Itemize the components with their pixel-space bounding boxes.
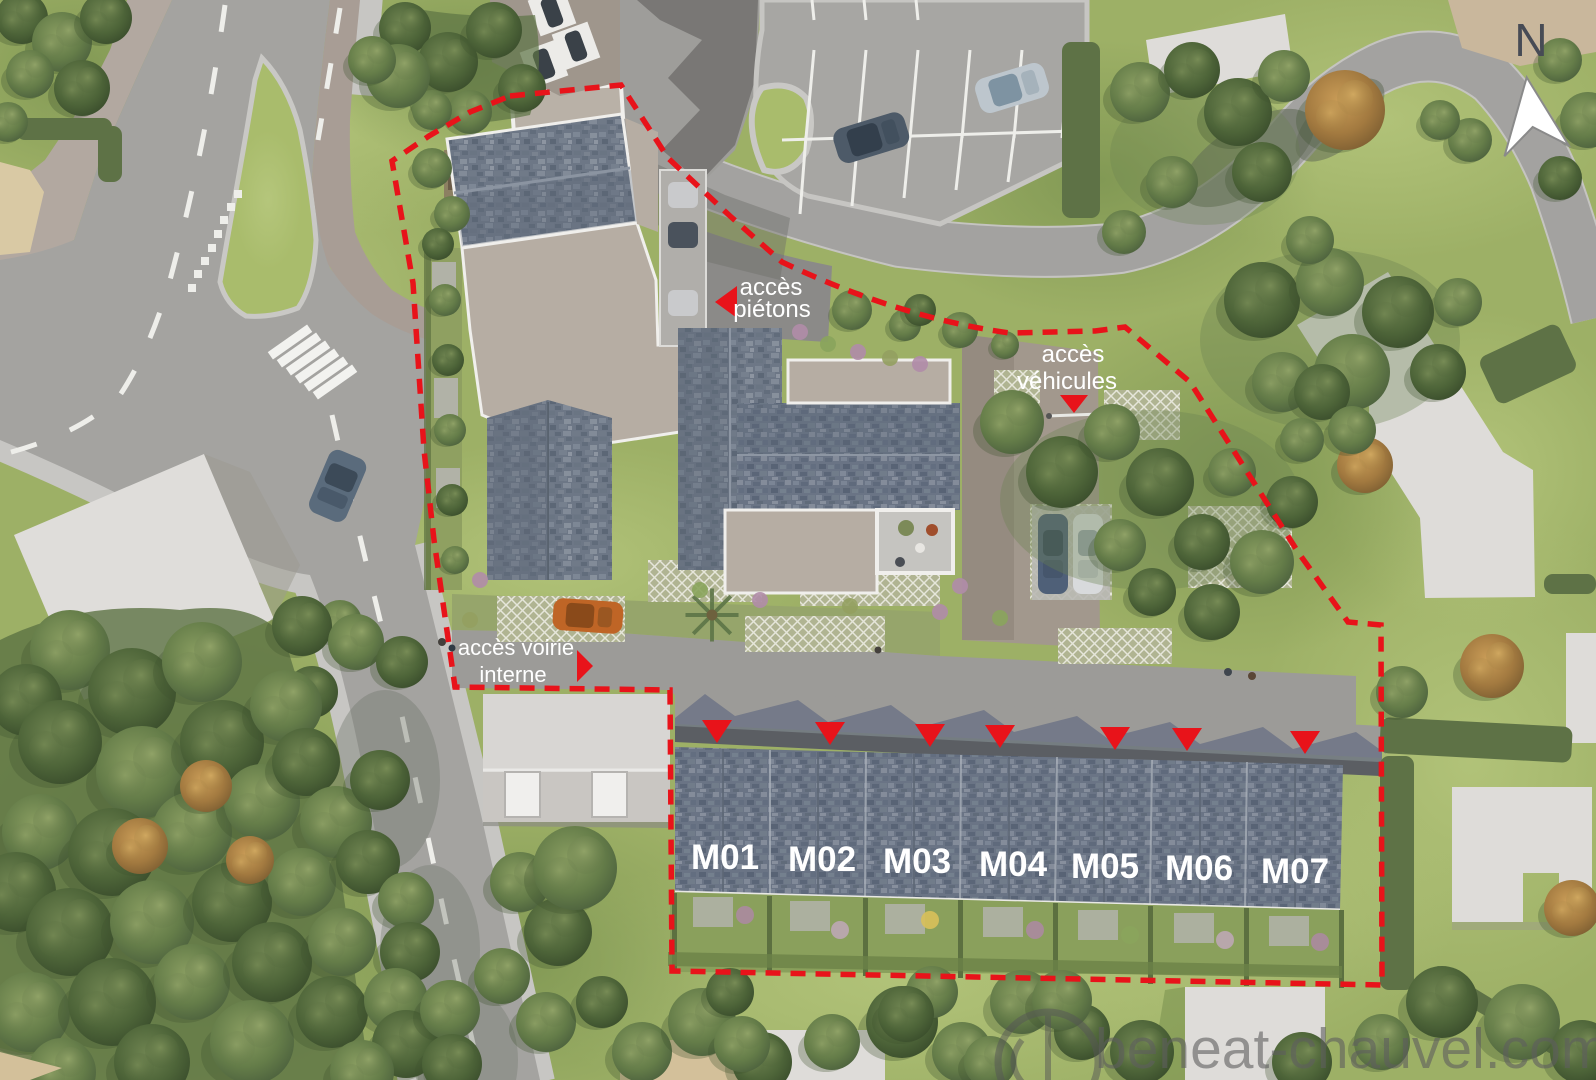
svg-text:M01: M01 (691, 838, 759, 877)
svg-text:interne: interne (479, 662, 546, 687)
svg-text:M05: M05 (1071, 847, 1139, 886)
svg-text:accès: accès (1042, 341, 1105, 368)
svg-text:accès voirie: accès voirie (458, 635, 574, 660)
svg-text:M02: M02 (788, 840, 856, 879)
svg-text:véhicules: véhicules (1017, 368, 1117, 395)
svg-text:piétons: piétons (733, 296, 810, 323)
svg-text:beneat-chauvel.com: beneat-chauvel.com (1095, 1017, 1596, 1080)
svg-text:M03: M03 (883, 842, 951, 881)
svg-text:M04: M04 (979, 845, 1048, 884)
svg-text:M07: M07 (1261, 852, 1329, 891)
svg-text:M06: M06 (1165, 849, 1233, 888)
svg-text:N: N (1514, 14, 1547, 66)
